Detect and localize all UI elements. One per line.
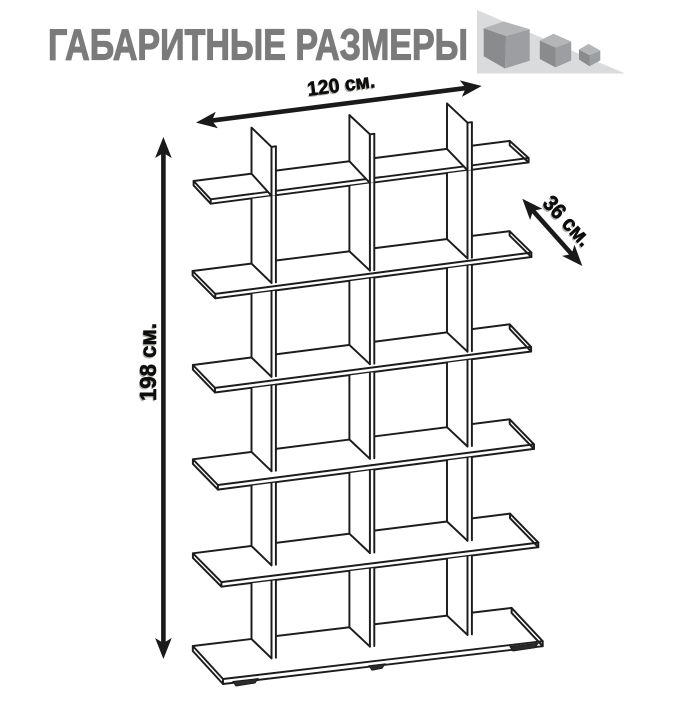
- svg-text:198 см.: 198 см.: [135, 323, 161, 401]
- svg-text:ГАБАРИТНЫЕ РАЗМЕРЫ: ГАБАРИТНЫЕ РАЗМЕРЫ: [48, 21, 468, 70]
